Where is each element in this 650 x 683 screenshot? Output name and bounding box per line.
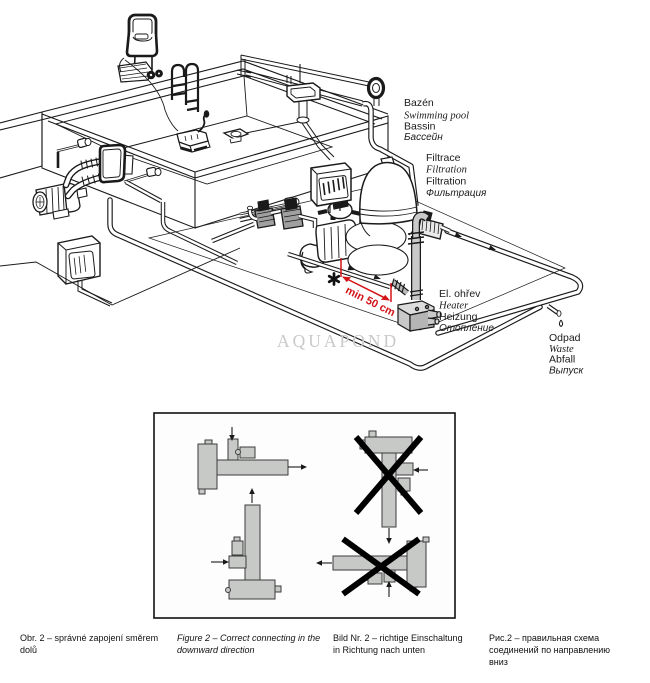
svg-text:dolů: dolů <box>20 645 37 655</box>
svg-text:Figure 2 – Correct connecting: Figure 2 – Correct connecting in the <box>177 633 320 643</box>
svg-text:Bild Nr. 2 – richtige Einschal: Bild Nr. 2 – richtige Einschaltung <box>333 633 463 643</box>
svg-text:вниз: вниз <box>489 657 508 667</box>
svg-text:Obr. 2 – správné zapojení směr: Obr. 2 – správné zapojení směrem <box>20 633 158 643</box>
svg-text:Odpad: Odpad <box>549 332 581 344</box>
svg-text:Выпуск: Выпуск <box>549 366 585 377</box>
svg-text:Бассейн: Бассейн <box>404 132 443 143</box>
svg-text:AQUAPOND: AQUAPOND <box>277 331 399 351</box>
svg-text:Filtration: Filtration <box>426 176 466 188</box>
svg-text:Heizung: Heizung <box>439 311 478 323</box>
svg-text:соединений по направлению: соединений по направлению <box>489 645 610 655</box>
svg-text:Abfall: Abfall <box>549 354 575 366</box>
svg-text:Filtration: Filtration <box>425 165 467 176</box>
svg-text:min 50 cm: min 50 cm <box>343 284 397 319</box>
svg-text:downward direction: downward direction <box>177 645 255 655</box>
svg-text:Filtrace: Filtrace <box>426 152 461 164</box>
svg-text:Фильтрация: Фильтрация <box>426 188 487 199</box>
svg-text:Отопление: Отопление <box>439 323 494 334</box>
svg-text:Heater: Heater <box>438 301 469 312</box>
svg-text:El. ohřev: El. ohřev <box>439 288 481 300</box>
svg-text:Bassin: Bassin <box>404 121 436 133</box>
svg-text:Рис.2 – правильная схема: Рис.2 – правильная схема <box>489 633 599 643</box>
svg-text:Bazén: Bazén <box>404 97 434 109</box>
svg-text:in Richtung nach unten: in Richtung nach unten <box>333 645 425 655</box>
